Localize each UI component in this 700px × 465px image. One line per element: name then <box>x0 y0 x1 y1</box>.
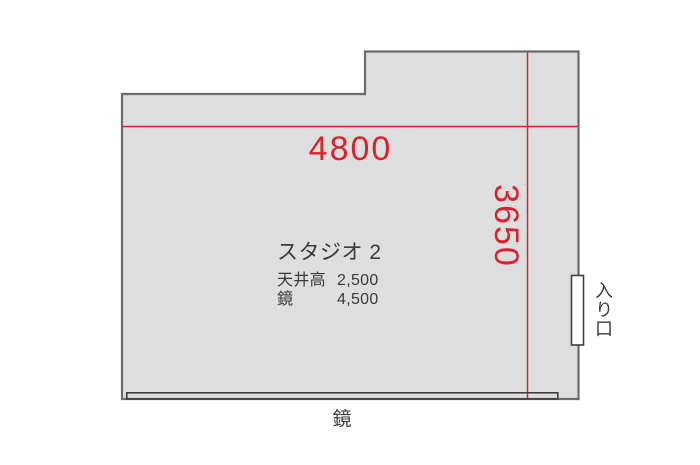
width-dimension-label: 4800 <box>122 132 579 166</box>
height-dimension-label: 3650 <box>489 176 523 276</box>
spec-table: 天井高 2,500 鏡 4,500 <box>277 271 379 309</box>
mirror-label: 鏡 <box>126 404 558 431</box>
spec-label-mirror: 鏡 <box>277 290 337 309</box>
spec-label-ceiling-height: 天井高 <box>277 271 337 290</box>
room-title: スタジオ 2 <box>277 236 382 266</box>
spec-value-ceiling-height: 2,500 <box>337 271 379 290</box>
spec-value-mirror: 4,500 <box>337 290 379 309</box>
floorplan-drawing <box>0 0 700 465</box>
entrance-door <box>572 276 584 346</box>
entrance-label: 入り口 <box>590 281 616 338</box>
floorplan-canvas: 4800 3650 スタジオ 2 天井高 2,500 鏡 4,500 鏡 入り口 <box>0 0 700 465</box>
